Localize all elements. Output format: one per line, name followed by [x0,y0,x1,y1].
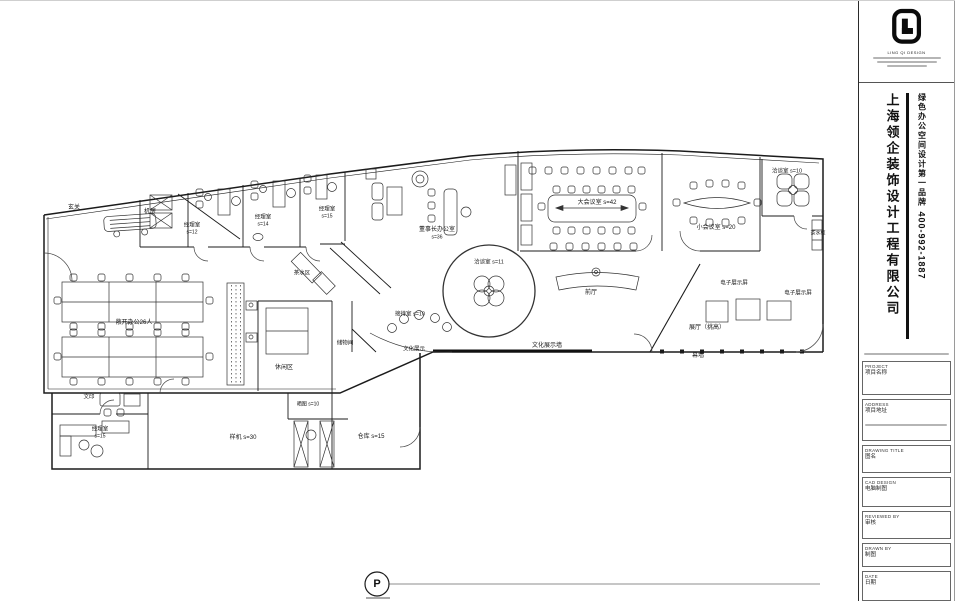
company-phone: 400-992-1887 [917,211,927,279]
tea-point-cabinets [291,252,335,294]
negotiation-room-10 [777,174,809,206]
plan-symbol [365,572,820,598]
shafts [294,421,334,467]
fine-print-line [873,57,941,59]
entry-bench [104,213,157,238]
field-drawn-by: DRAWN BY 制图 [862,543,951,567]
workstation-cluster-1 [54,274,213,330]
divider [906,93,909,339]
door-arcs [44,216,807,447]
furniture [54,163,822,467]
field-reviewed-by: REVIEWED BY 审核 [862,511,951,539]
round-meeting-room [443,245,535,337]
corner-arc [796,324,823,352]
logo-brand-text: LING QI DESIGN [887,50,925,55]
field-address: ADDRESS 项目地址 [862,399,951,441]
small-conference-room [673,180,761,226]
workstation-cluster-2 [54,329,213,385]
interior-walls [52,151,823,469]
fine-print-line [887,65,927,67]
field-cad-design: CAD DESIGN 电脑制图 [862,477,951,507]
logo-section: LING QI DESIGN [859,1,954,83]
manager-office-2 [251,181,296,241]
slogan-column: 绿色办公空间设计第一品牌 400-992-1887 [913,93,931,343]
fine-print-line [877,61,937,63]
field-project: PROJECT 项目名称 [862,361,951,395]
company-name: 上海领企装饰设计工程有限公司 [883,93,902,345]
display-screens [706,299,791,322]
floor-plan-area: 玄关机房经理室s=12经理室s=14经理室s=15董事长办公室s=36茶水区大会… [0,1,860,601]
bookshelf [227,283,257,385]
big-conference-room [521,163,646,250]
title-block-note [864,353,949,355]
title-block: LING QI DESIGN 上海领企装饰设计工程有限公司 绿色办公空间设计第一… [858,1,955,601]
company-section: 上海领企装饰设计工程有限公司 绿色办公空间设计第一品牌 400-992-1887 [859,83,954,345]
copy-machines [100,393,140,406]
title-block-fields: PROJECT 项目名称 ADDRESS 项目地址 DRAWING TITLE … [859,361,954,601]
company-slogan: 绿色办公空间设计第一品牌 [918,93,927,207]
floor-plan-drawing [0,1,860,601]
annex-manager-office [60,409,129,457]
field-date: DATE 日期 [862,571,951,601]
manager-office-1 [196,189,241,215]
manager-office-3 [304,175,337,199]
reception-nook [370,311,452,353]
field-drawing-title: DRAWING TITLE 图名 [862,445,951,473]
tea-cabinet [812,220,822,250]
chairman-office [366,165,516,235]
cad-floorplan-screenshot: 玄关机房经理室s=12经理室s=14经理室s=15董事长办公室s=36茶水区大会… [0,0,955,601]
plan-symbol-letter: P [373,578,380,590]
showroom-diagonal-wall [650,264,700,352]
company-logo-icon [890,8,924,48]
leisure-table [266,308,308,354]
reception-desk [556,268,639,290]
